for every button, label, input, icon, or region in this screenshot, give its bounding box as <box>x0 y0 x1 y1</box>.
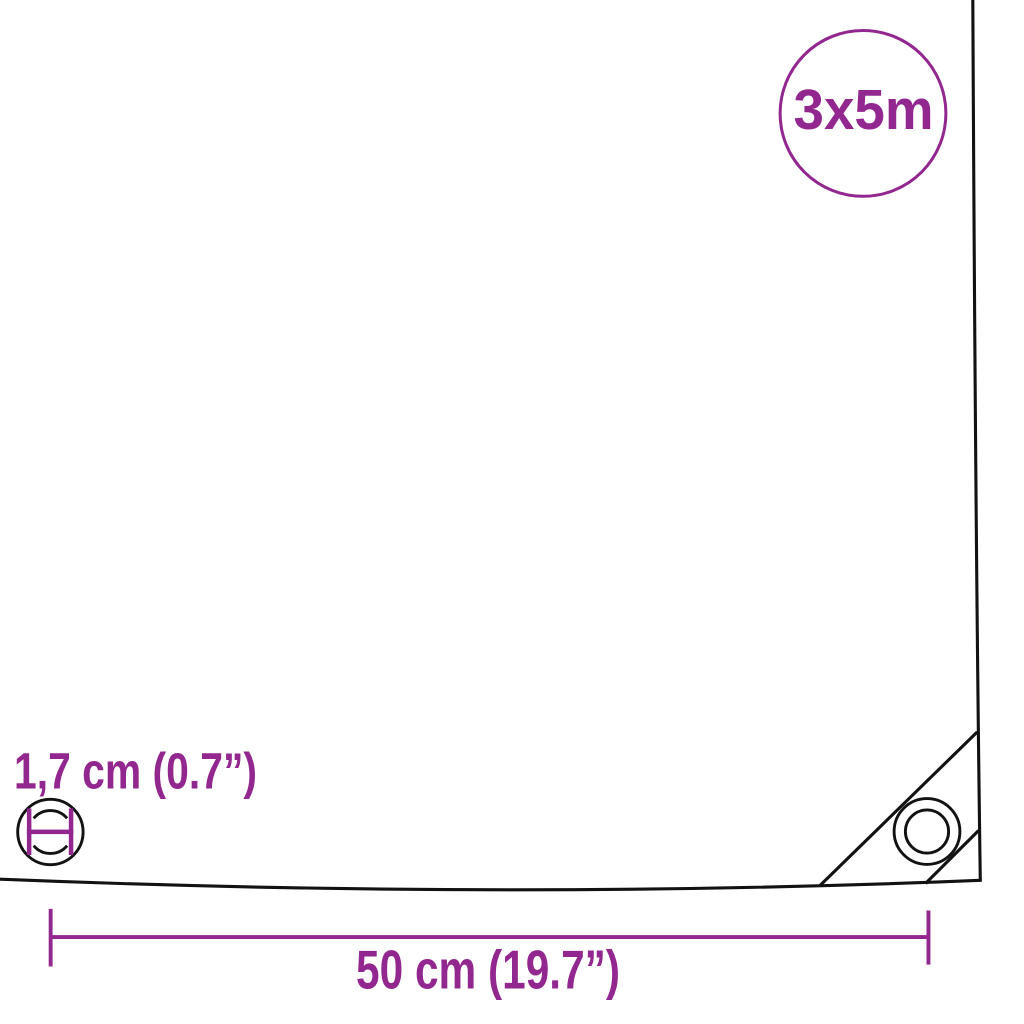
svg-text:1,7 cm (0.7”): 1,7 cm (0.7”) <box>14 743 257 800</box>
svg-text:50 cm (19.7”): 50 cm (19.7”) <box>356 938 620 1000</box>
svg-text:3x5m: 3x5m <box>794 78 934 142</box>
